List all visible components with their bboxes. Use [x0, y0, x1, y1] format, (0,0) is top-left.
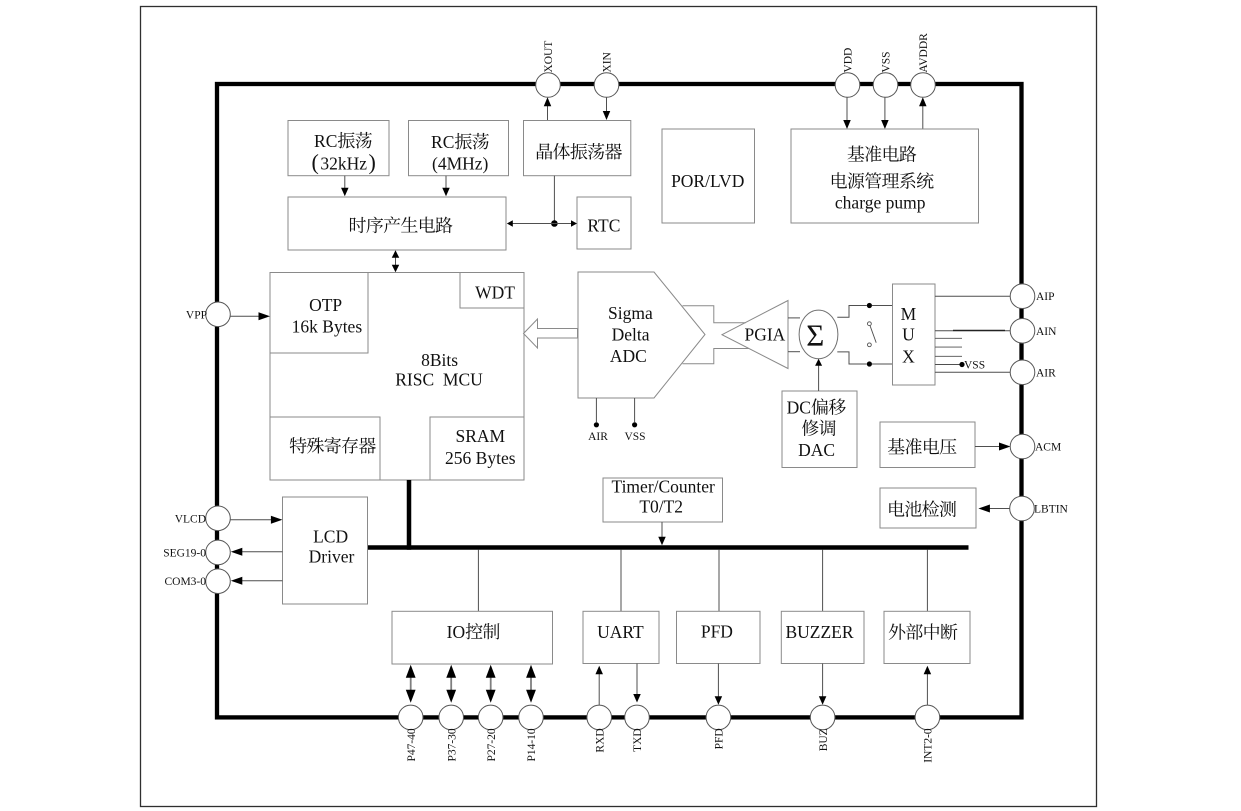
svg-text:BUZ: BUZ: [818, 728, 830, 751]
svg-text:Σ: Σ: [806, 317, 824, 352]
svg-text:(: (: [312, 150, 319, 175]
svg-text:P14-10: P14-10: [526, 728, 538, 761]
svg-text:PGIA: PGIA: [744, 324, 785, 344]
svg-text:VSS: VSS: [964, 360, 985, 372]
svg-text:Timer/Counter: Timer/Counter: [612, 476, 716, 496]
svg-text:POR/LVD: POR/LVD: [671, 171, 744, 191]
svg-text:DAC: DAC: [798, 440, 835, 460]
svg-text:256 Bytes: 256 Bytes: [445, 448, 516, 468]
svg-text:X: X: [902, 347, 915, 367]
svg-text:XIN: XIN: [602, 51, 614, 72]
svg-text:AIN: AIN: [1036, 326, 1057, 338]
svg-text:AVDDR: AVDDR: [918, 33, 930, 73]
svg-text:RXD: RXD: [594, 728, 606, 752]
svg-text:Sigma: Sigma: [608, 303, 653, 323]
svg-text:LCD: LCD: [313, 526, 348, 546]
svg-text:T0/T2: T0/T2: [639, 497, 683, 517]
svg-text:OTP: OTP: [309, 295, 342, 315]
svg-text:AIR: AIR: [588, 431, 608, 443]
svg-text:RC: RC: [314, 131, 337, 151]
svg-text:VLCD: VLCD: [175, 513, 206, 525]
svg-text:Delta: Delta: [612, 325, 650, 345]
svg-text:INT2-0: INT2-0: [923, 728, 935, 763]
svg-text:IO: IO: [447, 622, 465, 642]
svg-text:): ): [369, 150, 376, 175]
svg-text:VPP: VPP: [186, 309, 207, 321]
svg-text:8Bits: 8Bits: [421, 350, 458, 370]
svg-text:U: U: [902, 325, 915, 345]
svg-text:M: M: [901, 304, 917, 324]
svg-text:RISC MCU: RISC MCU: [395, 369, 483, 389]
svg-text:AIR: AIR: [1036, 367, 1056, 379]
svg-text:charge pump: charge pump: [835, 192, 926, 212]
svg-text:BUZZER: BUZZER: [785, 622, 853, 642]
svg-text:ACM: ACM: [1035, 442, 1061, 454]
svg-text:RTC: RTC: [587, 216, 620, 236]
svg-text:VDD: VDD: [843, 48, 855, 73]
svg-text:32kHz: 32kHz: [320, 154, 367, 174]
svg-text:PFD: PFD: [701, 622, 733, 642]
svg-text:COM3-0: COM3-0: [164, 576, 206, 588]
svg-text:UART: UART: [597, 622, 644, 642]
svg-text:AIP: AIP: [1036, 291, 1055, 303]
svg-text:P37-30: P37-30: [446, 728, 458, 761]
svg-text:VSS: VSS: [624, 431, 645, 443]
svg-text:P47-40: P47-40: [406, 728, 418, 761]
svg-text:LBTIN: LBTIN: [1034, 504, 1069, 516]
svg-text:(4MHz): (4MHz): [432, 153, 489, 173]
svg-text:SEG19-0: SEG19-0: [163, 547, 206, 559]
svg-text:Driver: Driver: [309, 546, 355, 566]
svg-text:16k Bytes: 16k Bytes: [292, 316, 363, 336]
svg-text:VSS: VSS: [881, 51, 893, 72]
svg-text:SRAM: SRAM: [455, 426, 505, 446]
svg-text:ADC: ADC: [610, 346, 647, 366]
svg-text:XOUT: XOUT: [543, 41, 555, 73]
svg-text:RC: RC: [431, 132, 454, 152]
svg-text:PFD: PFD: [714, 728, 726, 749]
svg-text:DC: DC: [787, 398, 811, 418]
svg-text:P27-20: P27-20: [486, 728, 498, 761]
svg-text:WDT: WDT: [475, 282, 515, 302]
svg-text:TXD: TXD: [632, 728, 644, 752]
